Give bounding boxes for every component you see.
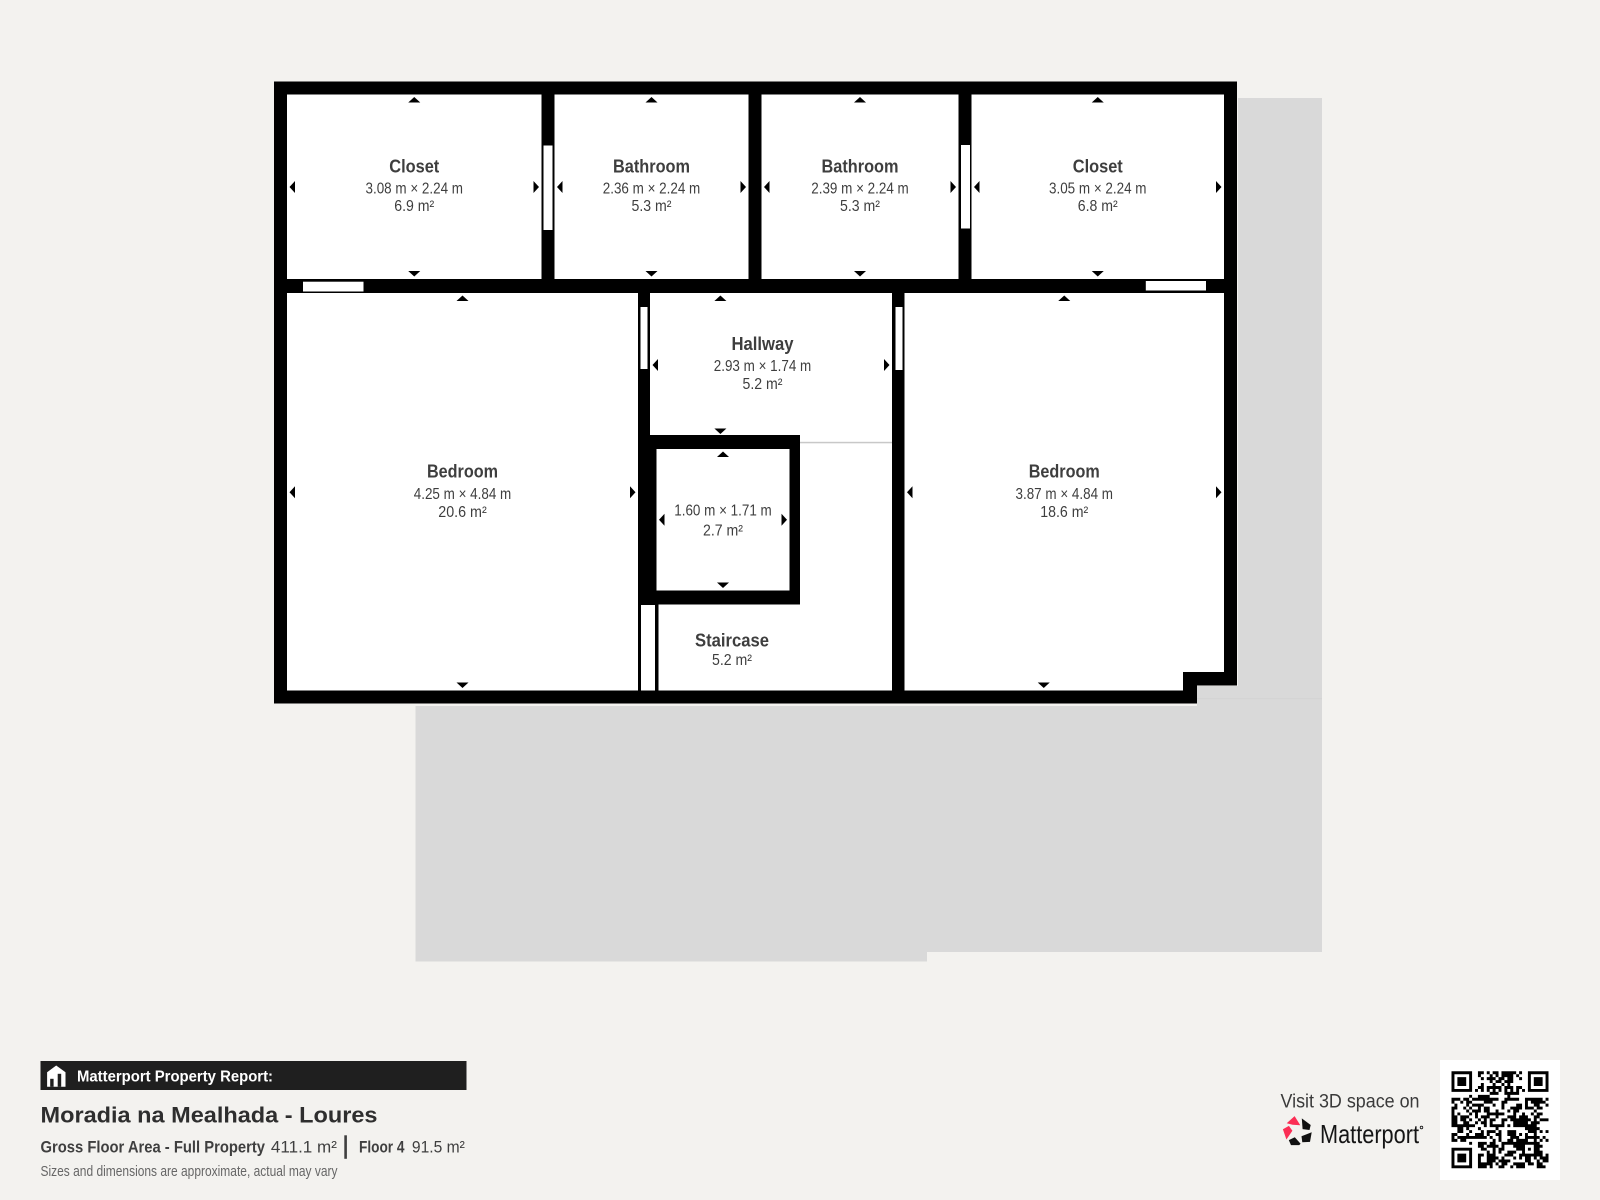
- svg-text:5.3 m²: 5.3 m²: [840, 198, 880, 215]
- svg-text:5.2 m²: 5.2 m²: [743, 376, 783, 393]
- svg-text:3.05 m × 2.24 m: 3.05 m × 2.24 m: [1049, 181, 1147, 198]
- svg-text:411.1 m²: 411.1 m²: [271, 1139, 338, 1157]
- svg-text:5.2 m²: 5.2 m²: [712, 652, 752, 669]
- svg-text:Staircase: Staircase: [695, 631, 769, 651]
- svg-text:Sizes and dimensions are appro: Sizes and dimensions are approximate, ac…: [41, 1164, 339, 1180]
- svg-text:Closet: Closet: [1073, 157, 1123, 177]
- svg-text:4.25 m × 4.84 m: 4.25 m × 4.84 m: [414, 486, 512, 503]
- svg-text:Bathroom: Bathroom: [822, 157, 899, 177]
- svg-text:6.9 m²: 6.9 m²: [394, 198, 434, 215]
- svg-text:20.6 m²: 20.6 m²: [438, 504, 487, 521]
- svg-text:6.8 m²: 6.8 m²: [1078, 198, 1118, 215]
- svg-text:Gross Floor Area - Full Proper: Gross Floor Area - Full Property: [41, 1139, 266, 1157]
- svg-text:2.7 m²: 2.7 m²: [703, 522, 743, 539]
- svg-text:2.93 m × 1.74 m: 2.93 m × 1.74 m: [714, 358, 812, 375]
- svg-text:3.08 m × 2.24 m: 3.08 m × 2.24 m: [366, 181, 464, 198]
- svg-text:Hallway: Hallway: [732, 334, 794, 354]
- svg-text:18.6 m²: 18.6 m²: [1040, 504, 1088, 521]
- svg-text:Floor 4: Floor 4: [359, 1139, 405, 1157]
- svg-text:2.36 m × 2.24 m: 2.36 m × 2.24 m: [603, 181, 701, 198]
- svg-text:Closet: Closet: [389, 157, 439, 177]
- svg-text:5.3 m²: 5.3 m²: [632, 198, 672, 215]
- svg-text:Matterport Property Report:: Matterport Property Report:: [77, 1069, 273, 1086]
- svg-text:Matterport: Matterport: [1320, 1119, 1420, 1149]
- svg-text:Bedroom: Bedroom: [1029, 462, 1100, 482]
- svg-text:Visit 3D space on: Visit 3D space on: [1281, 1092, 1420, 1113]
- svg-text:2.39 m × 2.24 m: 2.39 m × 2.24 m: [811, 181, 909, 198]
- svg-text:Moradia na Mealhada - Loures: Moradia na Mealhada - Loures: [41, 1103, 378, 1128]
- svg-text:91.5 m²: 91.5 m²: [412, 1139, 465, 1157]
- svg-text:Bathroom: Bathroom: [613, 157, 690, 177]
- svg-text:1.60 m × 1.71 m: 1.60 m × 1.71 m: [674, 503, 772, 520]
- svg-text:Bedroom: Bedroom: [427, 462, 498, 482]
- svg-text:3.87 m × 4.84 m: 3.87 m × 4.84 m: [1016, 486, 1114, 503]
